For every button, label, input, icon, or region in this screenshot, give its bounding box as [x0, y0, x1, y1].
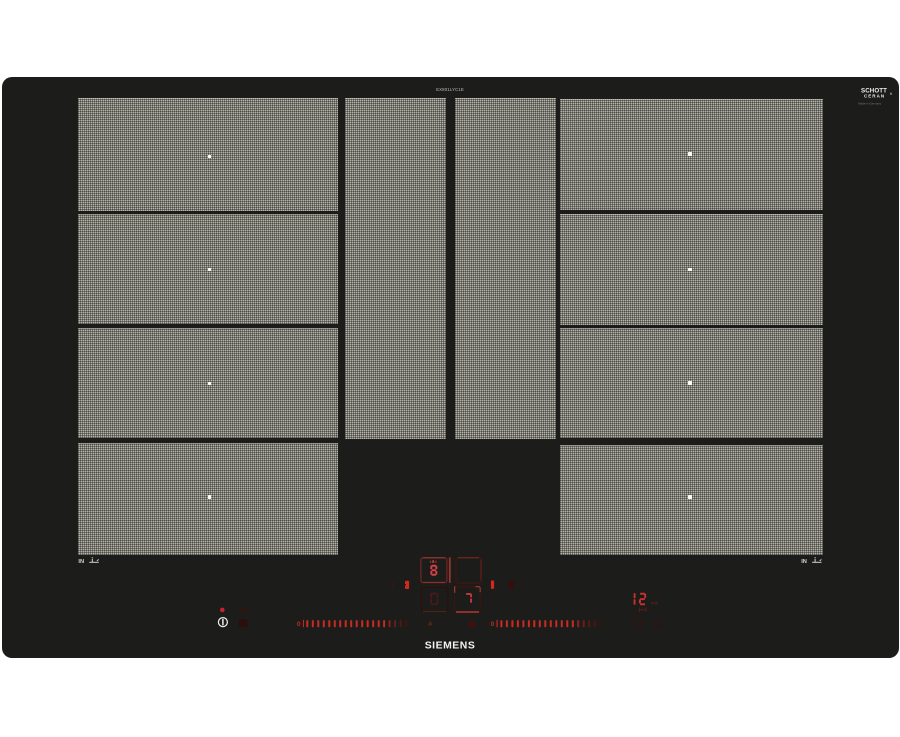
svg-text:Made in Germany: Made in Germany	[858, 101, 881, 105]
svg-text:CERAN: CERAN	[864, 93, 885, 98]
svg-text:EX801LYC1E: EX801LYC1E	[436, 87, 464, 92]
svg-text:IN: IN	[78, 559, 84, 565]
svg-text:0: 0	[297, 621, 301, 628]
svg-text:min: min	[651, 601, 659, 606]
svg-text:0: 0	[491, 621, 495, 628]
svg-text:IN: IN	[801, 559, 807, 565]
svg-text:®: ®	[890, 92, 892, 96]
svg-text:SIEMENS: SIEMENS	[425, 640, 476, 651]
